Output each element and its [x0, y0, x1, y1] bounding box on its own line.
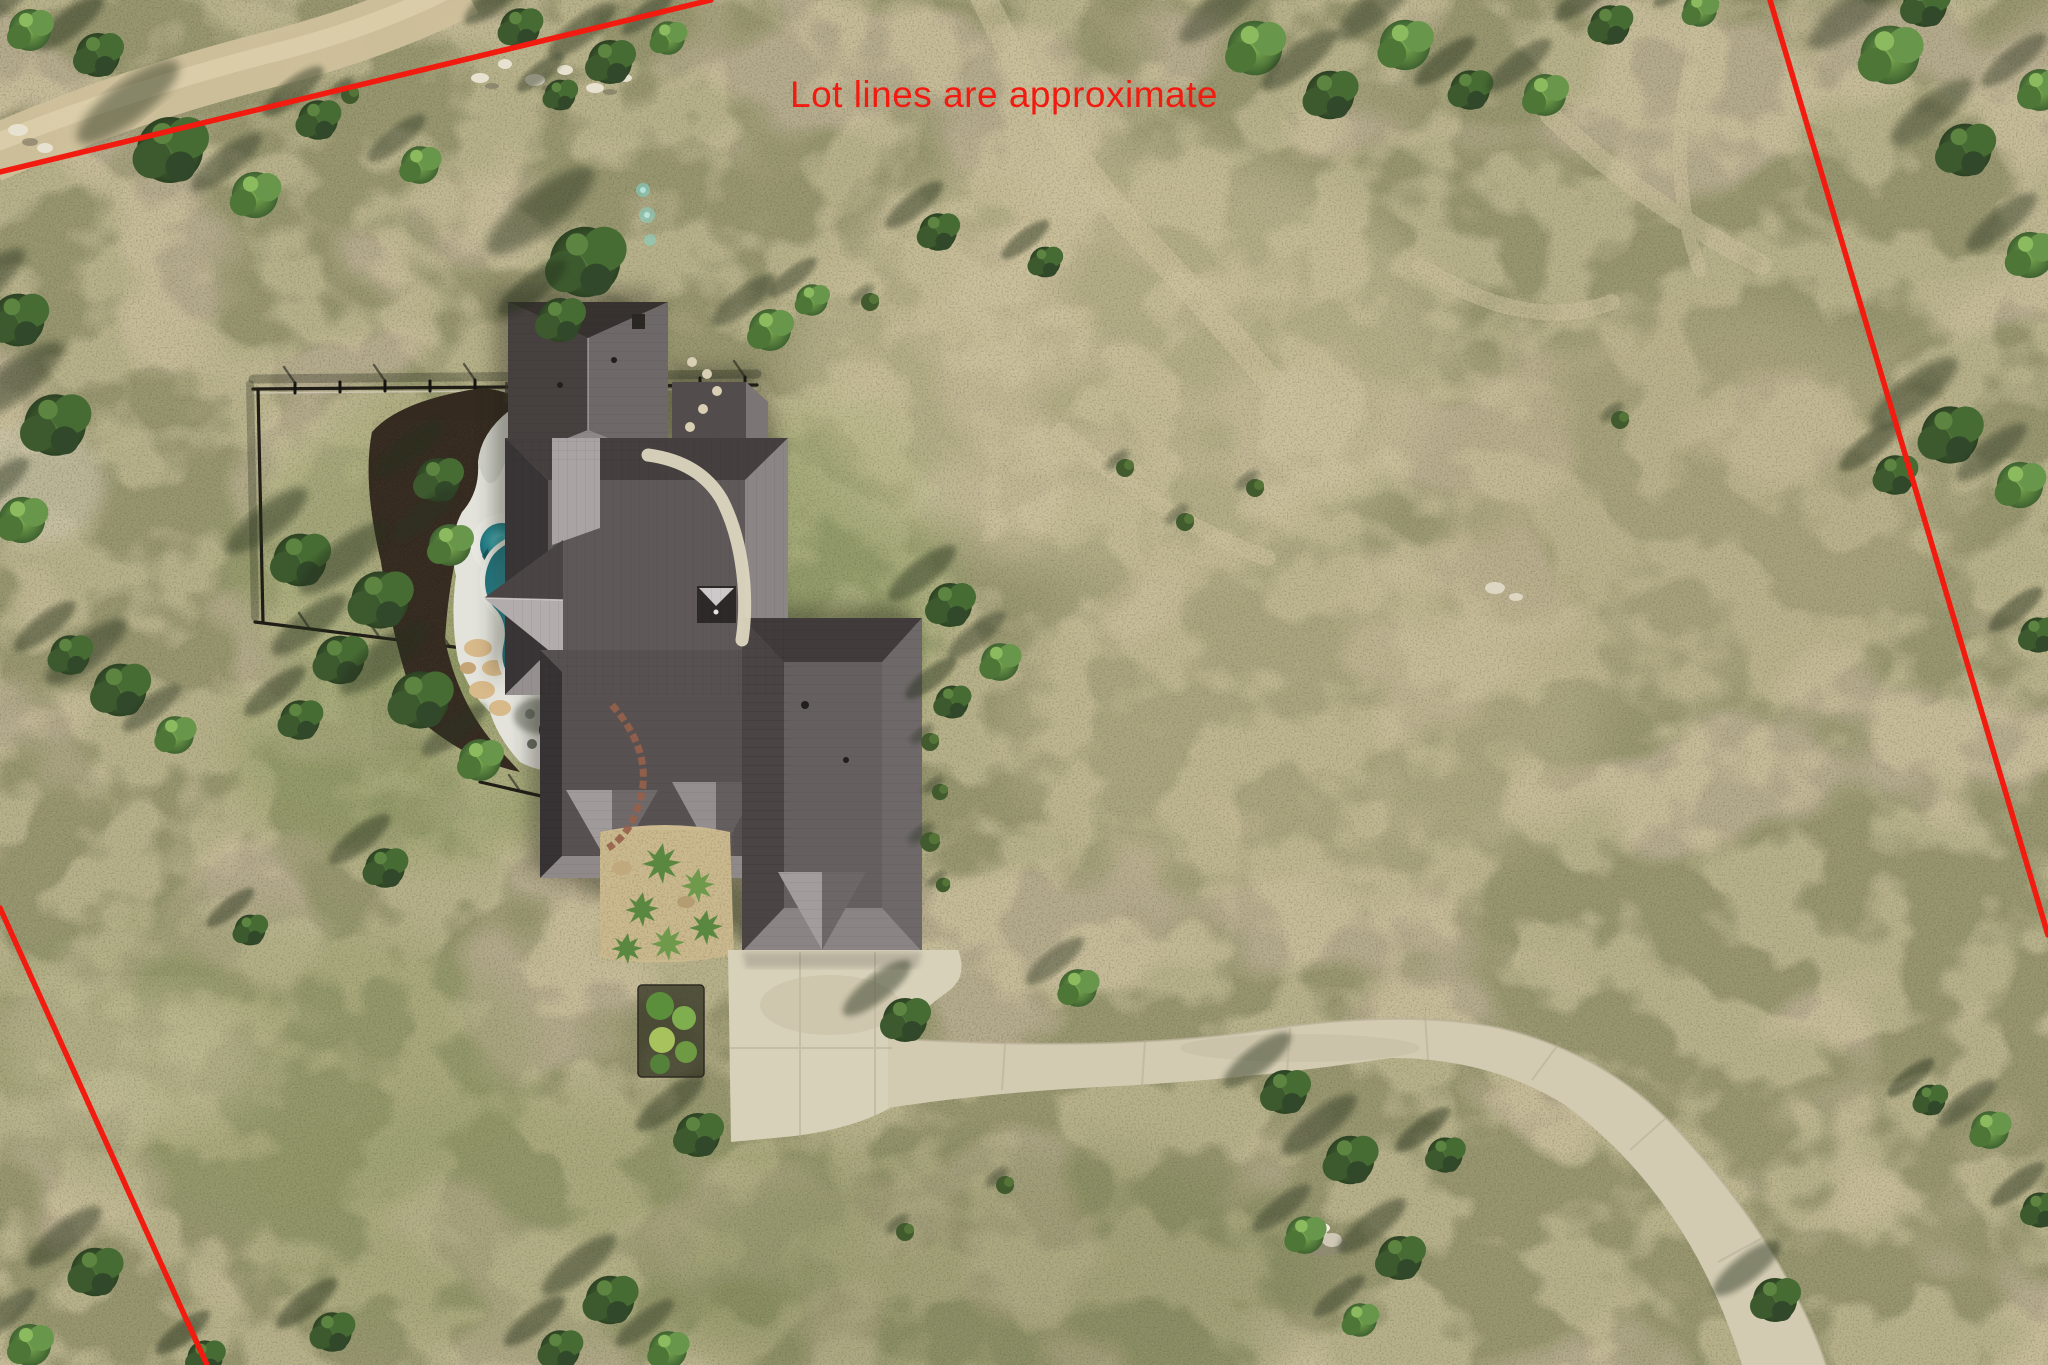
- aerial-photo: Lot lines are approximate: [0, 0, 2048, 1365]
- terrain-base: [0, 0, 2048, 1365]
- veggie-garden: [638, 985, 704, 1077]
- aerial-photo-canvas: [0, 0, 2048, 1365]
- disclaimer-text: Lot lines are approximate: [790, 74, 1218, 116]
